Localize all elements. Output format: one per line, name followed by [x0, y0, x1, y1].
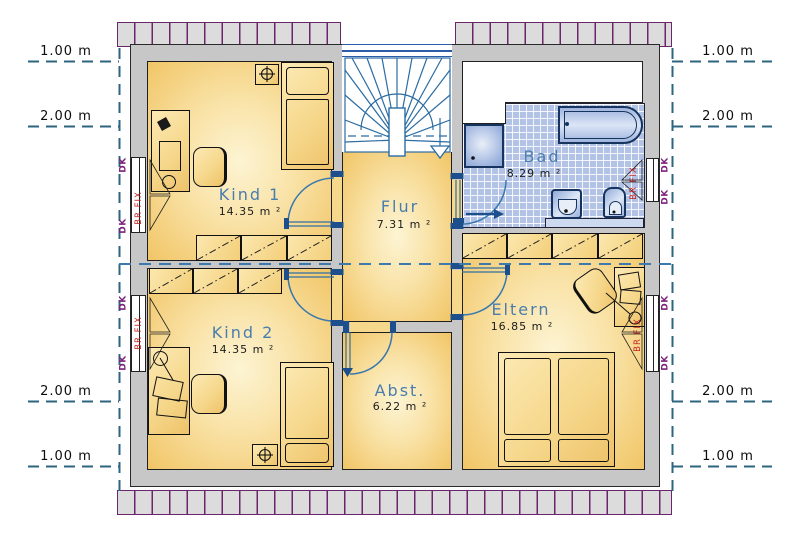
- dk-label-right-1: DK: [661, 157, 671, 172]
- brfix-label-kind2: BR FIX: [134, 316, 144, 350]
- dim-right-3: 2.00 m: [698, 384, 758, 399]
- dim-right-2: 2.00 m: [698, 109, 758, 124]
- brfix-label-bad: BR FIX: [629, 166, 639, 200]
- dim-right-4: 1.00 m: [698, 449, 758, 464]
- plan-linework-overlay: [0, 0, 800, 534]
- brfix-label-eltern: BR FIX: [633, 318, 643, 352]
- dk-label-left-4: DK: [119, 355, 129, 370]
- floor-plan: Kind 1 14.35 m ² Kind 2 14.35 m ² Flur 7…: [0, 0, 800, 534]
- label-kind1-area: 14.35 m ²: [200, 205, 300, 218]
- door-arc-bad: [462, 180, 506, 224]
- dim-left-2: 2.00 m: [36, 109, 96, 124]
- dk-label-right-3: DK: [661, 295, 671, 310]
- label-eltern-area: 16.85 m ²: [472, 320, 572, 333]
- label-bad-area: 8.29 m ²: [484, 167, 584, 180]
- dk-label-left-2: DK: [119, 218, 129, 233]
- dk-label-left-1: DK: [119, 157, 129, 172]
- shower-drain: [471, 156, 475, 160]
- label-kind2: Kind 2: [193, 323, 293, 342]
- label-flur-area: 7.31 m ²: [354, 218, 454, 231]
- dk-label-left-3: DK: [119, 295, 129, 310]
- stairs: [345, 58, 450, 158]
- brfix-label-kind1: BR FIX: [134, 191, 144, 225]
- label-kind1: Kind 1: [200, 185, 300, 204]
- dk-label-right-2: DK: [661, 189, 671, 204]
- label-eltern: Eltern: [471, 300, 571, 319]
- label-bad: Bad: [492, 147, 592, 166]
- label-kind2-area: 14.35 m ²: [193, 343, 293, 356]
- dim-left-1: 1.00 m: [36, 44, 96, 59]
- dim-right-1: 1.00 m: [698, 44, 758, 59]
- dim-left-3: 2.00 m: [36, 384, 96, 399]
- label-flur: Flur: [350, 197, 450, 216]
- bathtub-faucet: [565, 122, 569, 126]
- label-abst: Abst.: [350, 381, 450, 400]
- dim-left-4: 1.00 m: [36, 449, 96, 464]
- abst-entry-arrow: [342, 368, 353, 377]
- label-abst-area: 6.22 m ²: [350, 400, 450, 413]
- dk-label-right-4: DK: [661, 355, 671, 370]
- door-arc-abst: [350, 332, 392, 374]
- kind1-desk-speaker: [157, 117, 171, 131]
- door-arc-kind2: [288, 275, 334, 321]
